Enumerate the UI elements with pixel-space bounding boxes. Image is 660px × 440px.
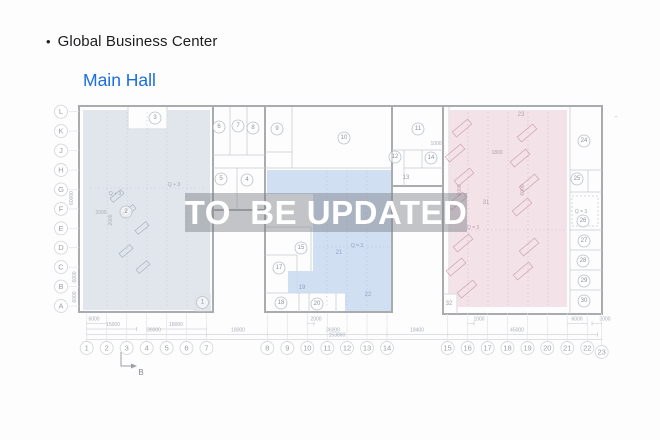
room-number: 13 (403, 175, 410, 181)
plan-annotation: Q = 3 (575, 209, 588, 215)
grid-col-number: 4 (145, 344, 149, 353)
grid-col-number: 19 (523, 344, 531, 353)
grid-row-letter: D (58, 243, 64, 252)
grid-col-number: 11 (323, 344, 331, 353)
section-marker: B (121, 352, 144, 377)
room-number: 23 (518, 112, 525, 118)
grid-col-number: 5 (165, 344, 169, 353)
plan-annotation: 6000 (72, 291, 78, 302)
room-number: 25 (574, 176, 581, 182)
grid-col-number: 22 (583, 344, 591, 353)
dimension-text: 1000 (473, 317, 484, 323)
grid-col-number: 9 (285, 344, 289, 353)
dimension-text: 3000 (599, 317, 610, 323)
dimension-text: 18400 (410, 328, 424, 334)
grid-col-number: 15 (444, 344, 452, 353)
room-number: 30 (581, 298, 588, 304)
room-number: 15 (298, 245, 305, 251)
grid-col-number: 2 (105, 344, 109, 353)
grid-col-number: 21 (563, 344, 571, 353)
grid-row-letter: L (59, 107, 63, 116)
room-number: 29 (581, 278, 588, 284)
plan-annotation: 2000 (95, 210, 106, 216)
grid-row-letter: A (58, 302, 63, 311)
grid-row-letter: H (58, 166, 63, 175)
dimension-text: 6000 (88, 317, 99, 323)
room-number: 26 (580, 218, 587, 224)
dimension-text: 2000 (310, 317, 321, 323)
grid-col-number: 3 (125, 344, 129, 353)
grid-col-number: 18 (503, 344, 511, 353)
grid-col-number: 1 (85, 344, 89, 353)
grid-col-number: 12 (343, 344, 351, 353)
room-number: 21 (336, 250, 343, 256)
room-number: 17 (276, 265, 283, 271)
dimension-text: 153860 (329, 333, 346, 339)
grid-row-letter: F (59, 204, 64, 213)
room-number: 14 (428, 155, 435, 161)
grid-col-number: 16 (464, 344, 472, 353)
grid-row-letter: E (58, 224, 63, 233)
grid-row-letter: J (59, 146, 63, 155)
watermark-banner: TO BE UPDATED (185, 193, 467, 232)
section-marker-label: B (138, 368, 143, 377)
grid-col-number: 14 (383, 344, 391, 353)
room-number: 22 (365, 292, 372, 298)
room-number: 32 (446, 301, 453, 307)
plan-annotation: Q + 3 (168, 182, 181, 188)
zone-middle-storage (267, 170, 391, 311)
plan-annotation: Q = 3 (467, 225, 480, 231)
grid-row-letter: G (58, 185, 64, 194)
room-number: 18 (278, 300, 285, 306)
dimension-text: 18000 (169, 322, 183, 328)
room-number: 20 (314, 301, 321, 307)
grid-col-number: 10 (303, 344, 311, 353)
page: • Global Business Center Main Hall (0, 0, 660, 440)
dimension-text: 6000 (571, 317, 582, 323)
grid-col-number: 17 (484, 344, 492, 353)
dimension-lines: 6000200010006000300015000180003600018000… (87, 317, 611, 342)
room-number: 11 (415, 126, 422, 132)
room-number: 10 (341, 135, 348, 141)
grid-col-number: 23 (598, 348, 606, 357)
grid-col-number: 20 (543, 344, 551, 353)
dimension-text: 18000 (231, 328, 245, 334)
dimension-text: 45000 (510, 328, 524, 334)
room-number: 27 (581, 238, 588, 244)
plan-annotation: – (614, 114, 618, 120)
dimension-text: 36000 (147, 328, 161, 334)
plan-annotation: Q + 3 (109, 191, 122, 197)
grid-row-letter: K (58, 127, 63, 136)
plan-annotation: Q = 3 (351, 243, 364, 249)
dimension-text: 15000 (106, 322, 120, 328)
room-number: 19 (299, 285, 306, 291)
grid-row-letter: B (58, 282, 63, 291)
watermark-text: TO BE UPDATED (185, 194, 468, 232)
grid-col-number: 6 (184, 344, 188, 353)
plan-annotation: 6000 (520, 184, 526, 195)
grid-col-number: 13 (363, 344, 371, 353)
grid-row-letter: C (58, 263, 64, 272)
room-number: 28 (580, 258, 587, 264)
room-number: 24 (581, 138, 588, 144)
plan-annotation: 6000 (72, 271, 78, 282)
plan-annotation: 2000 (108, 214, 114, 225)
grid-col-number: 8 (265, 344, 269, 353)
plan-annotation: 60000 (69, 191, 75, 205)
room-number: 12 (392, 154, 399, 160)
grid-col-number: 7 (204, 344, 208, 353)
room-number: 31 (483, 200, 490, 206)
plan-annotation: 1000 (430, 141, 441, 147)
plan-annotation: 1800 (491, 150, 502, 156)
